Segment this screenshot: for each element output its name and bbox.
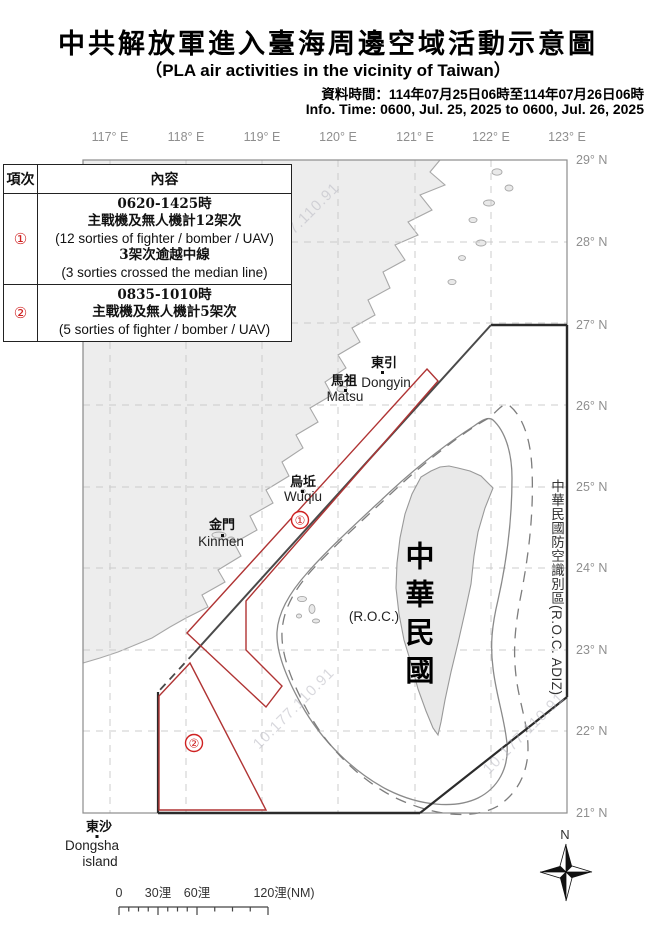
lat-24n: 24° N [576, 561, 607, 575]
scale-30: 30浬 [145, 886, 171, 900]
row-2-line-2: 主戰機及無人機計5架次 [38, 304, 291, 321]
row-2-line-1: 0835-1010時 [38, 287, 291, 304]
pla-activity-bulletin: ① ② 117° E 118° E 119° E 120° E 121° E 1… [0, 0, 656, 948]
row-1-line-5: (3 sorties crossed the median line) [38, 264, 291, 281]
taiwan-vertical-label: 中華民國 [397, 541, 439, 711]
compass-rose: N [540, 827, 592, 901]
label-matsu-zh: 馬祖 [331, 373, 357, 389]
page-subtitle: （PLA air activities in the vicinity of T… [0, 56, 656, 81]
info-time-zh: 資料時間：114年07月25日06時至114年07月26日06時 [321, 83, 644, 103]
longitude-labels: 117° E 118° E 119° E 120° E 121° E 122° … [92, 130, 586, 144]
scale-0: 0 [116, 886, 123, 900]
label-dongsha-en2: island [82, 854, 117, 869]
taiwan-adiz-map: ① ② 117° E 118° E 119° E 120° E 121° E 1… [0, 0, 656, 948]
row-1-number: ① [4, 194, 38, 284]
lat-28n: 28° N [576, 235, 607, 249]
adiz-vertical-label: 中華民國防空識別區(R.O.C. ADIZ) [546, 479, 566, 711]
zone-2-badge: ② [186, 735, 203, 752]
label-dongsha-en1: Dongsha [65, 838, 120, 853]
lat-27n: 27° N [576, 318, 607, 332]
label-kinmen-zh: 金門 [208, 517, 235, 533]
label-wuqiu-en: Wuqiu [284, 489, 322, 504]
table-row: ② 0835-1010時 主戰機及無人機計5架次 (5 sorties of f… [4, 284, 291, 341]
lat-21n: 21° N [576, 806, 607, 820]
lat-25n: 25° N [576, 480, 607, 494]
latitude-labels: 29° N 28° N 27° N 26° N 25° N 24° N 23° … [576, 153, 607, 820]
lon-120e: 120° E [319, 130, 357, 144]
info-time-en: Info. Time: 0600, Jul. 25, 2025 to 0600,… [306, 101, 644, 117]
lon-123e: 123° E [548, 130, 586, 144]
lat-26n: 26° N [576, 399, 607, 413]
label-kinmen-en: Kinmen [198, 534, 244, 549]
row-2-content: 0835-1010時 主戰機及無人機計5架次 (5 sorties of fig… [38, 285, 291, 341]
row-2-number: ② [4, 285, 38, 341]
lon-119e: 119° E [244, 130, 281, 144]
col-header-item: 項次 [4, 165, 38, 193]
lat-22n: 22° N [576, 724, 607, 738]
scale-120: 120浬(NM) [253, 886, 314, 900]
scale-60: 60浬 [184, 886, 210, 900]
label-dongyin-en: Dongyin [361, 375, 411, 390]
col-header-content: 內容 [38, 165, 291, 193]
zone-1-number: ① [295, 514, 306, 528]
compass-n-label: N [560, 827, 569, 842]
row-1-line-3: (12 sorties of fighter / bomber / UAV) [38, 230, 291, 247]
row-1-line-4: 3架次逾越中線 [38, 247, 291, 264]
table-header-row: 項次 內容 [4, 165, 291, 193]
row-2-line-3: (5 sorties of fighter / bomber / UAV) [38, 321, 291, 338]
lon-118e: 118° E [168, 130, 205, 144]
label-wuqiu-zh: 烏坵 [290, 474, 316, 490]
row-1-line-2: 主戰機及無人機計12架次 [38, 213, 291, 230]
zone-1-badge: ① [292, 512, 309, 529]
lat-29n: 29° N [576, 153, 607, 167]
label-dongyin-zh: 東引 [371, 355, 397, 371]
label-matsu-en: Matsu [327, 389, 364, 404]
row-1-line-1: 0620-1425時 [38, 196, 291, 213]
scale-bar [119, 907, 268, 915]
table-row: ① 0620-1425時 主戰機及無人機計12架次 (12 sorties of… [4, 193, 291, 284]
lon-117e: 117° E [92, 130, 129, 144]
lon-122e: 122° E [472, 130, 510, 144]
lon-121e: 121° E [396, 130, 434, 144]
row-1-content: 0620-1425時 主戰機及無人機計12架次 (12 sorties of f… [38, 194, 291, 284]
zone-2-number: ② [189, 737, 200, 751]
label-dongsha-zh: 東沙 [86, 819, 112, 835]
lat-23n: 23° N [576, 643, 607, 657]
label-roc: (R.O.C.) [349, 609, 399, 624]
activity-table: 項次 內容 ① 0620-1425時 主戰機及無人機計12架次 (12 sort… [3, 164, 292, 342]
